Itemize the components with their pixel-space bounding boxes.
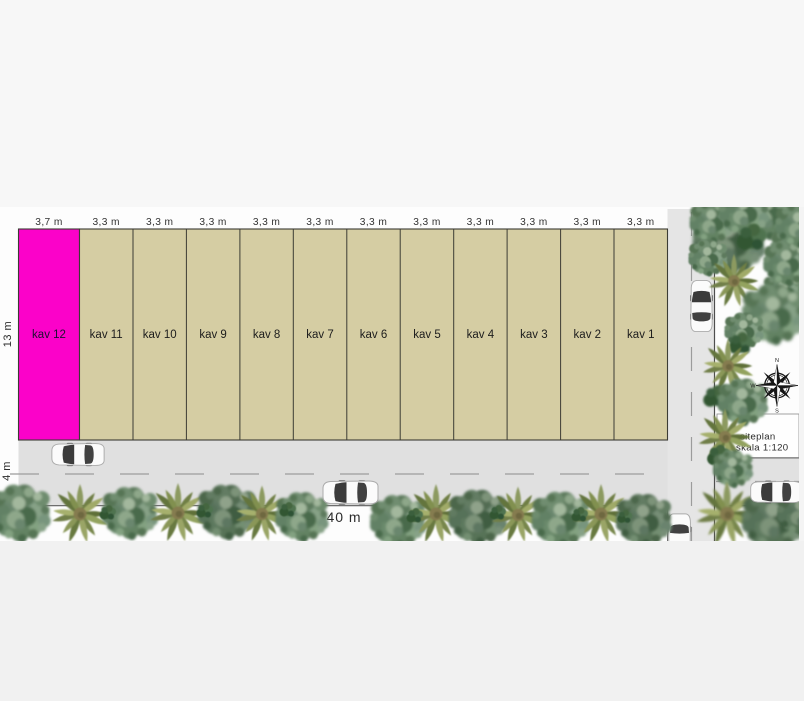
svg-text:3,3 m: 3,3 m xyxy=(574,217,601,228)
svg-text:3,3 m: 3,3 m xyxy=(306,217,333,228)
svg-text:kav 8: kav 8 xyxy=(253,329,281,341)
svg-text:3,3 m: 3,3 m xyxy=(146,217,173,228)
svg-text:kav 10: kav 10 xyxy=(143,329,177,341)
svg-text:kav 2: kav 2 xyxy=(574,329,602,341)
svg-text:kav 5: kav 5 xyxy=(413,329,441,341)
svg-text:kav 6: kav 6 xyxy=(360,329,388,341)
svg-text:13 m: 13 m xyxy=(2,321,14,347)
svg-text:kav 7: kav 7 xyxy=(306,329,334,341)
svg-text:kav 1: kav 1 xyxy=(627,329,655,341)
svg-text:kav 9: kav 9 xyxy=(199,329,227,341)
svg-text:3,7 m: 3,7 m xyxy=(35,217,62,228)
svg-text:3,3 m: 3,3 m xyxy=(520,217,547,228)
svg-text:3,3 m: 3,3 m xyxy=(627,217,654,228)
svg-text:kav 4: kav 4 xyxy=(467,329,495,341)
svg-text:kav 11: kav 11 xyxy=(90,329,123,341)
svg-text:3,3 m: 3,3 m xyxy=(360,217,387,228)
svg-text:40 m: 40 m xyxy=(326,509,361,525)
svg-text:3,3 m: 3,3 m xyxy=(467,217,494,228)
svg-text:W: W xyxy=(750,384,756,390)
svg-text:3,3 m: 3,3 m xyxy=(413,217,440,228)
svg-text:4 m: 4 m xyxy=(1,461,13,481)
svg-text:3,3 m: 3,3 m xyxy=(92,217,119,228)
svg-text:S: S xyxy=(775,409,779,415)
svg-text:N: N xyxy=(775,358,779,364)
svg-text:kav 3: kav 3 xyxy=(520,329,548,341)
svg-text:kav 12: kav 12 xyxy=(32,329,66,341)
svg-text:3,3 m: 3,3 m xyxy=(199,217,226,228)
svg-text:3,3 m: 3,3 m xyxy=(253,217,280,228)
